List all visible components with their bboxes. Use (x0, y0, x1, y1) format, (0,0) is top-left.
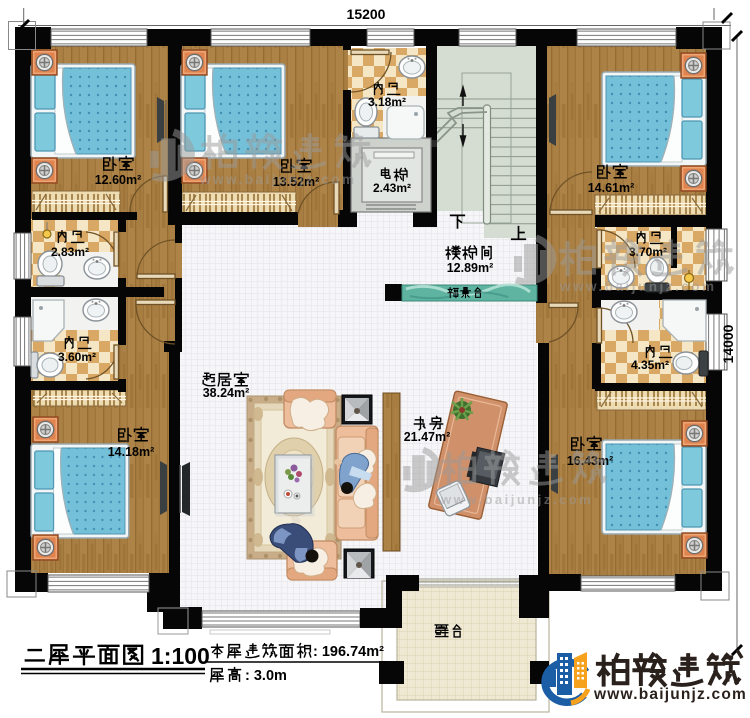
svg-text:14.61m²: 14.61m² (588, 181, 635, 195)
svg-text:: 3.0m: : 3.0m (245, 668, 287, 684)
svg-text:12.89m²: 12.89m² (447, 261, 494, 275)
svg-text:15200: 15200 (347, 6, 386, 22)
svg-text:1:100: 1:100 (151, 643, 210, 669)
svg-text:14000: 14000 (720, 324, 736, 363)
svg-text:: 196.74m²: : 196.74m² (313, 644, 384, 660)
svg-text:3.18m²: 3.18m² (368, 95, 406, 109)
svg-text:3.60m²: 3.60m² (58, 350, 96, 364)
svg-text:2.43m²: 2.43m² (373, 181, 411, 195)
svg-text:4.35m²: 4.35m² (631, 358, 669, 372)
svg-text:www.baijunjz.com: www.baijunjz.com (199, 172, 357, 187)
svg-text:38.24m²: 38.24m² (203, 386, 250, 400)
svg-text:www.baijunjz.com: www.baijunjz.com (593, 686, 747, 703)
svg-text:www.baijunjz.com: www.baijunjz.com (559, 279, 717, 294)
svg-text:2.83m²: 2.83m² (51, 245, 89, 259)
svg-text:www.baijunjz.com: www.baijunjz.com (440, 492, 593, 507)
svg-text:21.47m²: 21.47m² (404, 430, 451, 444)
svg-text:12.60m²: 12.60m² (95, 173, 142, 187)
svg-text:14.18m²: 14.18m² (108, 445, 155, 459)
